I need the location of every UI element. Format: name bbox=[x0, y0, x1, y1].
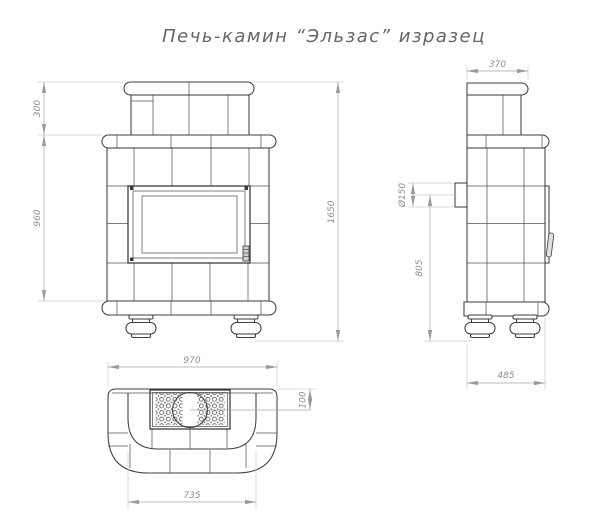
base-plate-outline bbox=[108, 389, 277, 473]
door-handle bbox=[243, 246, 249, 261]
side-chimney bbox=[467, 95, 521, 135]
dim-label-flue-diameter: Ø150 bbox=[397, 183, 408, 209]
base-cornice bbox=[102, 301, 276, 315]
dim-label-flue-center-height: 805 bbox=[415, 259, 425, 276]
drawing-title: Печь-камин “Эльзас” изразец bbox=[162, 26, 486, 47]
side-front-foot bbox=[510, 315, 540, 338]
grill-perforations-right bbox=[198, 394, 225, 426]
dim-label-inner-width: 735 bbox=[183, 491, 200, 501]
side-view: 370 Ø150 805 485 bbox=[397, 60, 554, 389]
side-rear-foot bbox=[465, 315, 495, 338]
mantel-shelf bbox=[102, 135, 276, 148]
front-left-foot bbox=[126, 315, 156, 338]
dim-label-flue-offset: 100 bbox=[299, 391, 309, 408]
technical-drawing-page: Печь-камин “Эльзас” изразец 300 960 1650 bbox=[0, 0, 600, 527]
stove-drawing: Печь-камин “Эльзас” изразец 300 960 1650 bbox=[0, 0, 600, 527]
front-right-foot bbox=[231, 315, 261, 338]
dim-label-body-height: 960 bbox=[33, 209, 43, 226]
dim-label-total-height: 1650 bbox=[327, 200, 337, 223]
plan-view: 970 100 735 bbox=[108, 356, 316, 508]
side-base-cornice bbox=[464, 302, 549, 316]
side-mantel-shelf bbox=[467, 135, 549, 148]
dim-label-overall-width: 970 bbox=[183, 356, 200, 366]
dim-label-base-depth: 485 bbox=[497, 371, 514, 381]
front-view: 300 960 1650 bbox=[33, 82, 344, 341]
grill-perforations-left bbox=[156, 394, 183, 426]
dim-label-chimney-height: 300 bbox=[33, 100, 43, 117]
side-body bbox=[467, 148, 545, 302]
dim-label-top-depth: 370 bbox=[489, 60, 506, 70]
side-chimney-cap bbox=[467, 83, 528, 95]
